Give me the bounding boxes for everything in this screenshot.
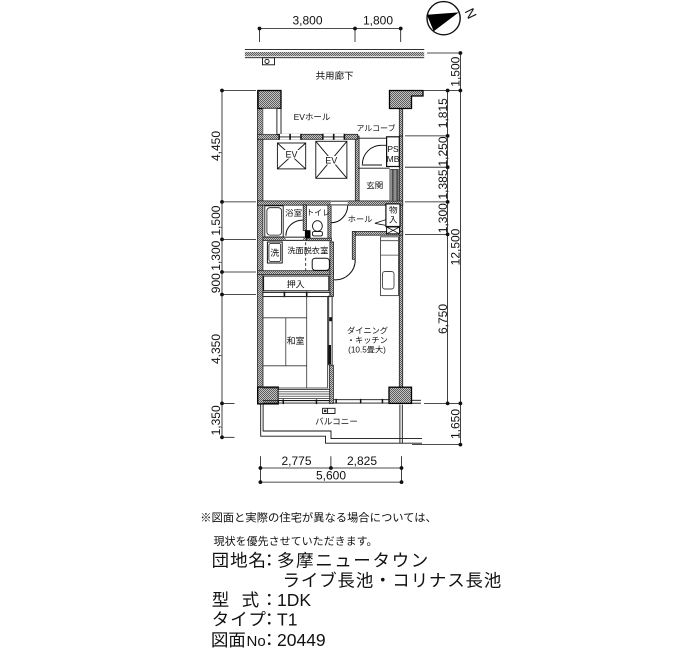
svg-text:バルコニー: バルコニー xyxy=(315,417,358,427)
svg-text:EV: EV xyxy=(325,156,337,166)
svg-text:浴室: 浴室 xyxy=(285,208,303,218)
svg-text:EVホール: EVホール xyxy=(294,112,331,122)
svg-text:多摩ニュータウン: 多摩ニュータウン xyxy=(277,551,430,571)
svg-text:3,800: 3,800 xyxy=(292,14,322,28)
svg-text:：: ： xyxy=(261,610,279,630)
svg-text:ダイニング: ダイニング xyxy=(347,325,388,335)
svg-text:T1: T1 xyxy=(277,610,297,630)
svg-text:タイプ: タイプ xyxy=(212,610,267,630)
svg-text:4,350: 4,350 xyxy=(209,334,223,364)
svg-text:：: ： xyxy=(261,630,279,650)
svg-text:1,350: 1,350 xyxy=(209,405,223,435)
svg-text:ライブ長池・コリナス長池: ライブ長池・コリナス長池 xyxy=(283,570,503,590)
svg-text:型: 型 xyxy=(212,590,230,610)
svg-text:(10.5畳大): (10.5畳大) xyxy=(348,346,386,355)
svg-text:ホール: ホール xyxy=(348,215,373,224)
svg-text:1,385: 1,385 xyxy=(436,169,450,199)
svg-text:物: 物 xyxy=(389,205,398,215)
svg-text:1,500: 1,500 xyxy=(448,56,462,86)
svg-text:現状を優先させていただきます。: 現状を優先させていただきます。 xyxy=(214,535,378,548)
svg-text:アルコーブ: アルコーブ xyxy=(356,123,395,133)
svg-text:※図面と実際の住宅が異なる場合については、: ※図面と実際の住宅が異なる場合については、 xyxy=(200,511,437,524)
svg-text:玄関: 玄関 xyxy=(366,180,383,190)
svg-text:1,300: 1,300 xyxy=(209,240,223,270)
svg-text:団地名: 団地名 xyxy=(212,551,267,571)
svg-text:1,800: 1,800 xyxy=(363,14,393,28)
svg-text:図面: 図面 xyxy=(211,630,246,650)
svg-text:洗面脱衣室: 洗面脱衣室 xyxy=(287,246,328,256)
svg-text:押入: 押入 xyxy=(287,280,305,290)
svg-text:EV: EV xyxy=(285,150,297,160)
svg-text:：: ： xyxy=(261,590,279,610)
svg-text:2,825: 2,825 xyxy=(347,454,377,468)
svg-text:1,650: 1,650 xyxy=(448,409,462,439)
svg-text:5,600: 5,600 xyxy=(316,468,346,482)
svg-text:共用廊下: 共用廊下 xyxy=(315,71,353,82)
svg-text:900: 900 xyxy=(209,273,223,293)
svg-text:式: 式 xyxy=(242,590,260,610)
svg-text:20449: 20449 xyxy=(277,630,326,650)
svg-text:トイレ: トイレ xyxy=(306,208,330,217)
svg-text:・キッチン: ・キッチン xyxy=(347,336,388,345)
svg-text:1,500: 1,500 xyxy=(209,205,223,235)
svg-text:洗: 洗 xyxy=(270,248,279,258)
svg-text:4,450: 4,450 xyxy=(209,131,223,161)
svg-text:和室: 和室 xyxy=(287,336,305,346)
svg-text:6,750: 6,750 xyxy=(436,304,450,334)
svg-text:MB: MB xyxy=(387,154,400,164)
svg-text:入: 入 xyxy=(389,215,398,225)
svg-text:1DK: 1DK xyxy=(277,590,311,610)
svg-text:12,500: 12,500 xyxy=(448,228,462,265)
svg-text:1,815: 1,815 xyxy=(436,98,450,128)
svg-text:PS: PS xyxy=(387,144,399,154)
svg-text:2,775: 2,775 xyxy=(281,454,311,468)
svg-text:1,250: 1,250 xyxy=(436,136,450,166)
svg-text:：: ： xyxy=(261,551,279,571)
